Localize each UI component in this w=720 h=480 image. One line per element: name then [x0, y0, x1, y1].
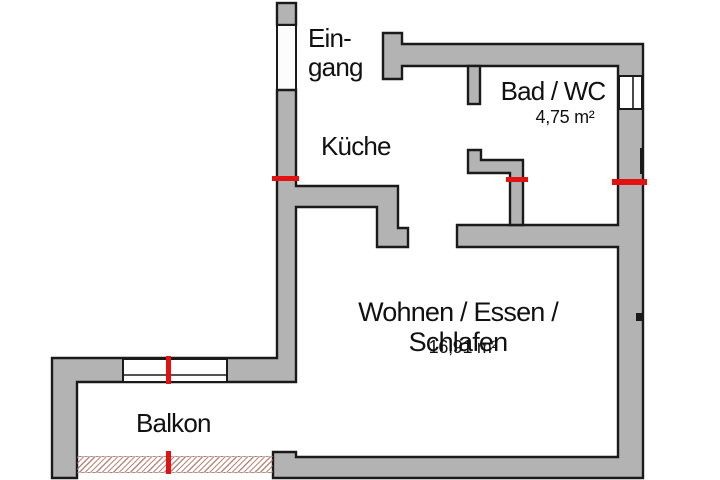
section-marker-railing [166, 451, 171, 474]
room-label-eingang: Ein- gang [308, 24, 363, 81]
room-area-bad: 4,75 m² [490, 108, 640, 128]
wall-left-cap [277, 3, 296, 25]
section-marker-toilet-wall [506, 177, 528, 182]
section-marker-left-wall [272, 176, 299, 181]
entrance-door-opening [277, 25, 296, 90]
section-marker-right-wall [612, 179, 647, 185]
wall-mark-lower [636, 313, 642, 321]
balcony-railing [77, 456, 273, 473]
room-label-bad: Bad / WC [478, 77, 628, 106]
room-label-kueche: Küche [321, 132, 391, 161]
room-label-balkon: Balkon [136, 409, 211, 438]
section-marker-balcony-window [166, 356, 171, 384]
floor-plan: Ein- gang Küche Bad / WC 4,75 m² Wohnen … [0, 0, 720, 480]
balcony-window [123, 359, 227, 382]
wall-mark-upper [640, 148, 644, 174]
room-area-wohnen: 16,91 m² [388, 338, 538, 358]
wall-toilet-partition [468, 150, 523, 225]
